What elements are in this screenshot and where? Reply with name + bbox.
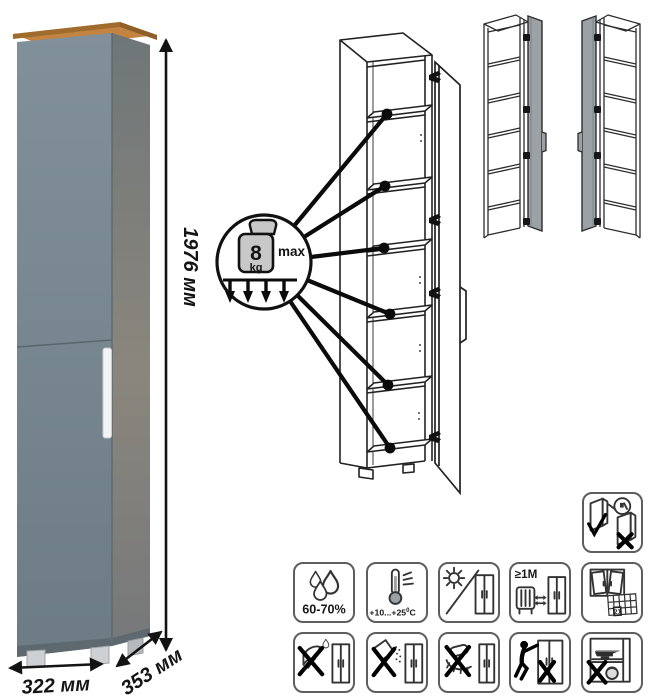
- cabinet-glyph: [479, 644, 494, 682]
- product-photo: 1976 мм 322 мм 353 мм: [0, 0, 220, 700]
- powder-box-icon: [374, 640, 394, 660]
- ventilation-calendar-icon: 21: [583, 564, 641, 621]
- temperature-label: +10...+250C: [369, 607, 416, 617]
- radiator-icon: [517, 587, 535, 613]
- no-abrasive-cleaning-icon: [368, 634, 426, 691]
- no-heavy-objects-icon: [583, 634, 641, 691]
- cabinet-glyph: [476, 575, 494, 613]
- care-icon-no-wet-sponge: [438, 632, 500, 693]
- care-icon-humidity: 60-70%: [293, 562, 355, 623]
- no-wet-sponge-icon: [440, 634, 498, 691]
- cabinet-door: [17, 33, 112, 657]
- no-dragging-icon: [511, 634, 569, 691]
- diagram-cabinet-outline: [340, 33, 432, 479]
- care-icon-no-abrasive: [366, 632, 428, 693]
- care-icon-door-mounting: [582, 492, 643, 553]
- calendar-day: 21: [614, 608, 622, 616]
- humidity-label: 60-70%: [302, 603, 345, 617]
- care-icon-ventilation: 21: [581, 562, 643, 623]
- variant-door: [523, 16, 546, 231]
- distance-label: ≥1М: [515, 568, 538, 581]
- spacing-arrows-icon: [534, 595, 546, 605]
- care-icon-sunlight: [438, 562, 500, 623]
- temperature-range-icon: +10...+250C: [368, 564, 426, 621]
- diagram-shelves: [367, 105, 432, 452]
- height-dimension: 1976 мм: [166, 40, 201, 650]
- load-qualifier: max: [278, 244, 306, 259]
- care-icon-temperature: +10...+250C: [366, 562, 428, 623]
- cabinet-render: [13, 22, 157, 668]
- no-direct-sunlight-icon: [440, 564, 498, 621]
- cabinet-glyph: [332, 644, 349, 682]
- shelf-load-diagram: 8 kg max: [215, 15, 477, 515]
- cabinet-glyph: [405, 644, 422, 682]
- kettlebell-icon: [606, 667, 618, 679]
- cabinet-glyph: [548, 577, 565, 613]
- door-mounting-check-icon: [584, 494, 641, 551]
- care-icon-no-heavy-objects: [581, 632, 643, 693]
- door-hinged-right-variant: [484, 15, 546, 238]
- humidity-icon: 60-70%: [295, 564, 353, 621]
- weight-icon: [250, 220, 276, 234]
- door-handle: [103, 348, 112, 438]
- diagram-door: [435, 62, 466, 493]
- heat-source-distance-icon: ≥1М: [511, 564, 569, 621]
- sun-icon: [444, 568, 465, 589]
- height-label: 1976 мм: [179, 227, 201, 307]
- variant-views: [478, 6, 646, 252]
- calendar-icon: 21: [608, 594, 637, 616]
- width-dimension: 322 мм: [10, 664, 102, 699]
- door-hinged-left-variant: [578, 15, 640, 238]
- load-unit: kg: [250, 262, 263, 274]
- depth-dimension: 353 мм: [117, 632, 187, 700]
- shelf-dots: [379, 109, 396, 454]
- product-sheet: 1976 мм 322 мм 353 мм: [0, 0, 648, 700]
- person-icon: [516, 641, 537, 679]
- cabinet-side: [112, 33, 150, 646]
- no-sharp-tools-icon: [295, 634, 353, 691]
- care-icon-no-dragging: [509, 632, 571, 693]
- care-icon-heat-distance: ≥1М: [509, 562, 571, 623]
- load-callout: 8 kg max: [217, 215, 311, 309]
- width-label: 322 мм: [21, 673, 91, 699]
- care-icon-no-sharp-tools: [293, 632, 355, 693]
- diagram-door-handle: [460, 287, 466, 343]
- open-window-icon: [591, 570, 625, 596]
